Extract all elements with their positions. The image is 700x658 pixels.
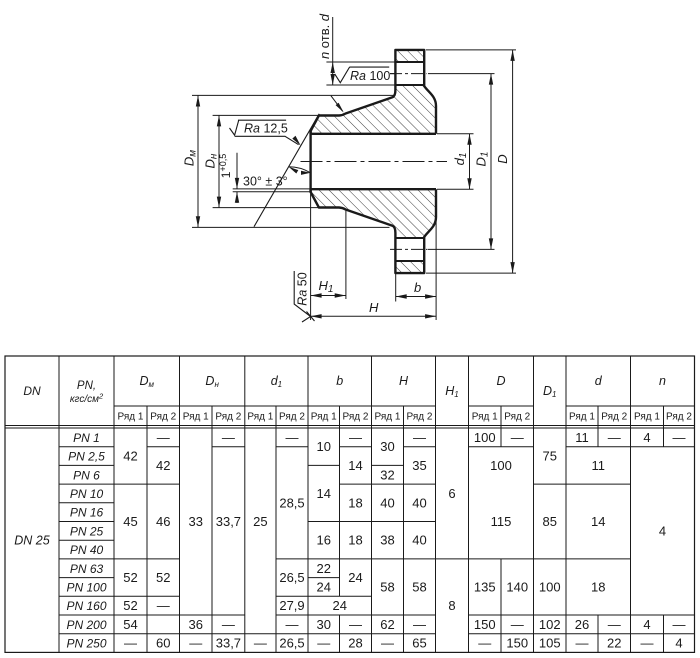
svg-text:d1: d1 xyxy=(271,374,282,389)
svg-text:135: 135 xyxy=(474,579,496,594)
svg-text:58: 58 xyxy=(412,579,426,594)
svg-text:—: — xyxy=(641,636,654,651)
svg-text:Ra 100: Ra 100 xyxy=(350,69,390,83)
svg-text:d1: d1 xyxy=(452,153,469,166)
svg-text:4: 4 xyxy=(643,430,650,445)
svg-text:30: 30 xyxy=(380,439,394,454)
svg-text:—: — xyxy=(511,430,524,445)
svg-text:52: 52 xyxy=(123,598,137,613)
svg-text:35: 35 xyxy=(412,458,426,473)
svg-text:40: 40 xyxy=(380,495,394,510)
svg-text:—: — xyxy=(576,636,589,651)
svg-text:100: 100 xyxy=(490,458,512,473)
svg-text:100: 100 xyxy=(474,430,496,445)
svg-text:58: 58 xyxy=(380,579,394,594)
svg-text:28: 28 xyxy=(348,636,362,651)
svg-text:8: 8 xyxy=(448,598,455,613)
svg-text:Ряд 2: Ряд 2 xyxy=(279,411,305,422)
svg-text:Ряд 1: Ряд 1 xyxy=(472,411,498,422)
svg-text:—: — xyxy=(124,636,137,651)
svg-text:Ряд 1: Ряд 1 xyxy=(183,411,209,422)
svg-text:—: — xyxy=(511,617,524,632)
svg-text:26,5: 26,5 xyxy=(279,636,304,651)
svg-text:PN 40: PN 40 xyxy=(70,543,104,557)
svg-text:16: 16 xyxy=(317,533,331,548)
svg-text:Ряд 2: Ряд 2 xyxy=(150,411,176,422)
svg-text:PN 25: PN 25 xyxy=(70,524,104,538)
svg-text:DN 25: DN 25 xyxy=(14,534,49,548)
svg-text:—: — xyxy=(286,430,299,445)
svg-text:45: 45 xyxy=(123,514,137,529)
svg-text:11: 11 xyxy=(592,458,606,473)
svg-text:—: — xyxy=(673,430,686,445)
svg-text:—: — xyxy=(381,636,394,651)
svg-text:40: 40 xyxy=(412,533,426,548)
svg-text:42: 42 xyxy=(123,449,137,464)
svg-text:4: 4 xyxy=(659,523,666,538)
svg-text:DN: DN xyxy=(23,384,41,398)
svg-text:—: — xyxy=(349,617,362,632)
svg-text:Ряд 1: Ряд 1 xyxy=(375,411,401,422)
svg-text:n: n xyxy=(659,374,666,388)
svg-text:Dн: Dн xyxy=(203,153,220,168)
svg-text:18: 18 xyxy=(348,533,362,548)
svg-text:PN 10: PN 10 xyxy=(70,487,104,501)
svg-text:PN 16: PN 16 xyxy=(70,506,104,520)
svg-text:Dм: Dм xyxy=(182,150,199,166)
svg-text:18: 18 xyxy=(591,579,605,594)
svg-text:H1: H1 xyxy=(319,278,334,295)
svg-text:10: 10 xyxy=(317,439,331,454)
svg-text:PN 250: PN 250 xyxy=(66,637,106,651)
svg-text:42: 42 xyxy=(156,458,170,473)
svg-text:D: D xyxy=(495,154,510,163)
svg-text:Ряд 2: Ряд 2 xyxy=(407,411,433,422)
svg-text:54: 54 xyxy=(123,617,137,632)
svg-text:b: b xyxy=(414,280,421,295)
svg-text:H1: H1 xyxy=(445,384,458,399)
svg-text:24: 24 xyxy=(348,570,362,585)
svg-text:Ra 50: Ra 50 xyxy=(296,272,310,305)
svg-text:Dм: Dм xyxy=(139,374,154,389)
svg-text:—: — xyxy=(608,617,621,632)
svg-text:24: 24 xyxy=(333,598,347,613)
svg-text:—: — xyxy=(608,430,621,445)
svg-text:27,9: 27,9 xyxy=(279,598,304,613)
svg-text:PN 63: PN 63 xyxy=(70,562,104,576)
svg-text:n отв. d: n отв. d xyxy=(317,13,332,59)
svg-text:11: 11 xyxy=(575,430,589,445)
svg-text:4: 4 xyxy=(675,636,682,651)
svg-text:H: H xyxy=(369,300,379,315)
svg-text:PN,: PN, xyxy=(77,380,96,392)
svg-text:Ряд 2: Ряд 2 xyxy=(666,411,692,422)
svg-text:—: — xyxy=(478,636,491,651)
svg-text:33,7: 33,7 xyxy=(216,514,241,529)
svg-text:18: 18 xyxy=(348,495,362,510)
svg-text:H: H xyxy=(399,374,409,388)
svg-text:115: 115 xyxy=(491,514,512,529)
svg-text:26: 26 xyxy=(575,617,589,632)
svg-text:—: — xyxy=(157,598,170,613)
svg-text:75: 75 xyxy=(543,449,557,464)
svg-text:26,5: 26,5 xyxy=(279,570,304,585)
svg-text:36: 36 xyxy=(189,617,203,632)
svg-text:25: 25 xyxy=(253,514,267,529)
svg-text:—: — xyxy=(222,617,235,632)
svg-text:14: 14 xyxy=(317,486,331,501)
svg-text:d: d xyxy=(595,374,603,388)
svg-text:52: 52 xyxy=(123,570,137,585)
svg-text:24: 24 xyxy=(317,579,331,594)
svg-text:—: — xyxy=(189,636,202,651)
svg-text:—: — xyxy=(413,617,426,632)
svg-text:—: — xyxy=(413,430,426,445)
svg-text:100: 100 xyxy=(539,579,561,594)
svg-text:60: 60 xyxy=(156,636,170,651)
svg-text:38: 38 xyxy=(380,533,394,548)
svg-text:6: 6 xyxy=(448,486,455,501)
svg-text:Ряд 1: Ряд 1 xyxy=(634,411,660,422)
svg-text:32: 32 xyxy=(380,467,394,482)
svg-text:Ряд 1: Ряд 1 xyxy=(569,411,595,422)
svg-text:b: b xyxy=(336,374,343,388)
svg-text:PN 1: PN 1 xyxy=(73,431,100,445)
svg-text:102: 102 xyxy=(539,617,561,632)
svg-text:22: 22 xyxy=(317,561,331,576)
svg-text:PN 200: PN 200 xyxy=(66,618,106,632)
svg-text:150: 150 xyxy=(506,636,528,651)
svg-text:14: 14 xyxy=(591,514,605,529)
svg-text:1+0,5: 1+0,5 xyxy=(218,154,233,178)
svg-text:33: 33 xyxy=(189,514,203,529)
svg-text:85: 85 xyxy=(543,514,557,529)
svg-text:30: 30 xyxy=(317,617,331,632)
svg-text:—: — xyxy=(349,430,362,445)
svg-text:—: — xyxy=(157,430,170,445)
svg-text:62: 62 xyxy=(380,617,394,632)
svg-text:—: — xyxy=(286,617,299,632)
svg-text:Dн: Dн xyxy=(205,374,219,389)
svg-text:D: D xyxy=(496,374,505,388)
svg-text:Ряд 2: Ряд 2 xyxy=(215,411,241,422)
svg-text:Ряд 1: Ряд 1 xyxy=(247,411,273,422)
svg-text:30° ± 3°: 30° ± 3° xyxy=(243,175,288,189)
svg-text:Ra 12,5: Ra 12,5 xyxy=(244,121,288,135)
svg-text:Ряд 1: Ряд 1 xyxy=(311,411,337,422)
svg-text:PN 100: PN 100 xyxy=(66,580,106,594)
svg-text:кгс/см2: кгс/см2 xyxy=(70,391,104,405)
svg-text:Ряд 2: Ряд 2 xyxy=(343,411,369,422)
svg-text:PN 160: PN 160 xyxy=(66,599,106,613)
svg-text:28,5: 28,5 xyxy=(279,495,304,510)
svg-text:140: 140 xyxy=(506,579,528,594)
svg-text:—: — xyxy=(254,636,267,651)
svg-text:Ряд 1: Ряд 1 xyxy=(118,411,144,422)
svg-text:14: 14 xyxy=(348,458,362,473)
svg-text:PN 6: PN 6 xyxy=(73,468,100,482)
svg-text:105: 105 xyxy=(539,636,561,651)
svg-text:Ряд 2: Ряд 2 xyxy=(601,411,627,422)
svg-text:D1: D1 xyxy=(474,152,491,167)
svg-text:D1: D1 xyxy=(543,384,556,399)
svg-text:Ряд 2: Ряд 2 xyxy=(504,411,530,422)
svg-text:46: 46 xyxy=(156,514,170,529)
svg-text:22: 22 xyxy=(607,636,621,651)
svg-text:—: — xyxy=(317,636,330,651)
svg-text:40: 40 xyxy=(412,495,426,510)
svg-text:PN 2,5: PN 2,5 xyxy=(68,450,105,464)
svg-text:4: 4 xyxy=(643,617,650,632)
svg-text:—: — xyxy=(222,430,235,445)
svg-text:150: 150 xyxy=(474,617,496,632)
svg-text:52: 52 xyxy=(156,570,170,585)
svg-text:—: — xyxy=(673,617,686,632)
svg-text:33,7: 33,7 xyxy=(216,636,241,651)
svg-text:65: 65 xyxy=(412,636,426,651)
